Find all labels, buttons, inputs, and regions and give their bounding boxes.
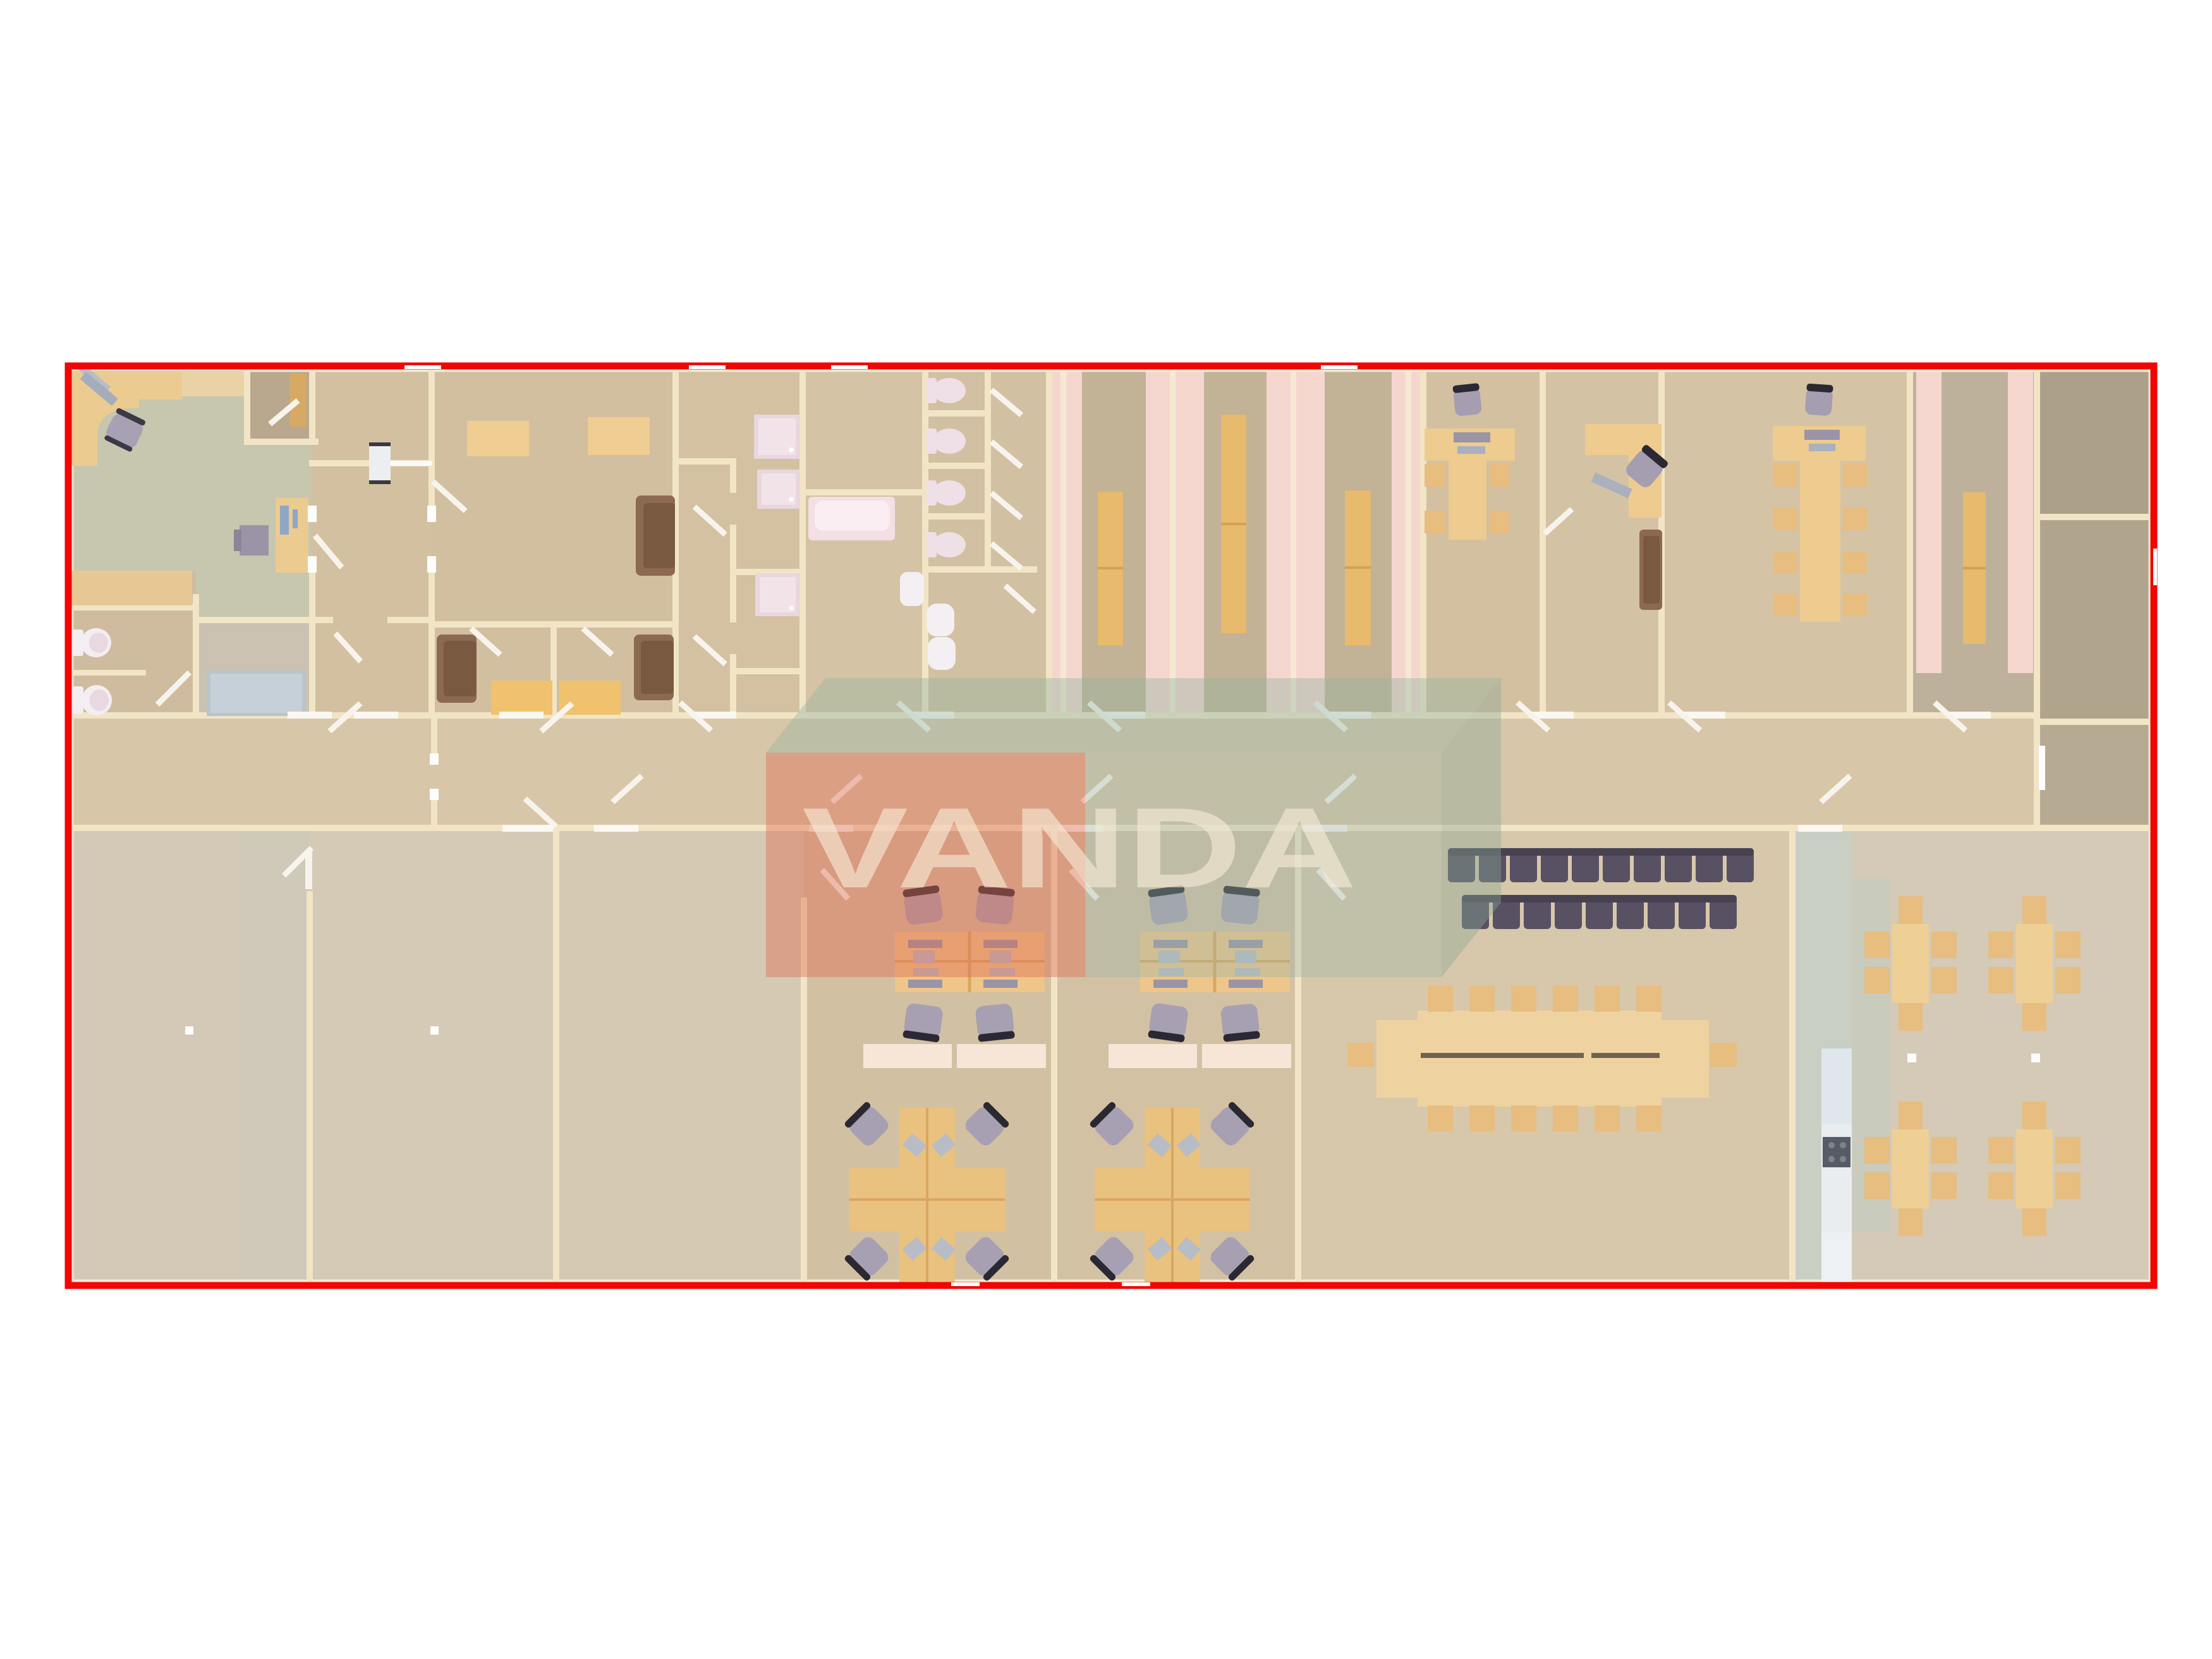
svg-text:VANDA: VANDA xyxy=(802,784,1357,912)
